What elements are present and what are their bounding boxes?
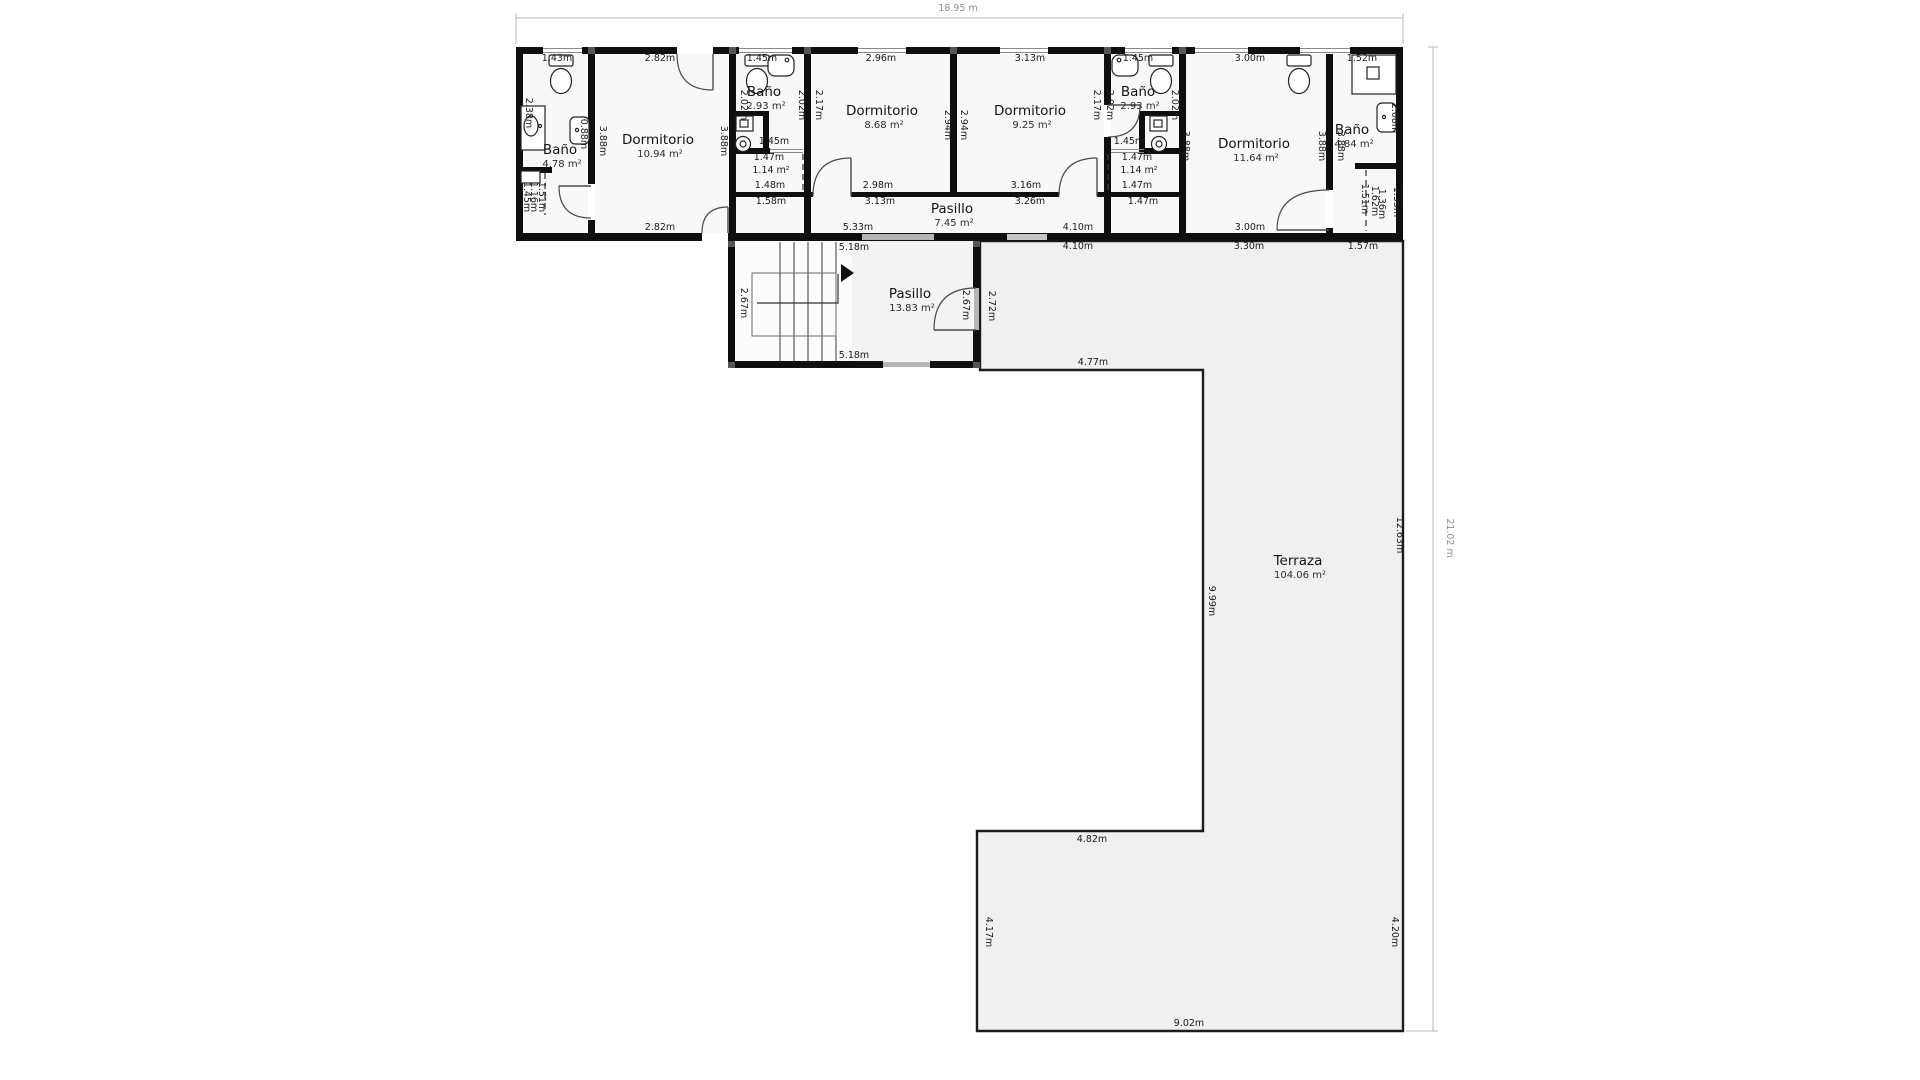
room-name-label: Dormitorio	[1218, 136, 1290, 152]
measurement-label: 4.77m	[1078, 357, 1108, 368]
measurement-label: 1.48m	[755, 180, 785, 191]
measurement-label: 2.72m	[986, 291, 997, 321]
room-name-label: Dormitorio	[846, 103, 918, 119]
measurement-label: 1.52m	[1347, 53, 1377, 64]
room-area-label: 13.83 m²	[889, 303, 935, 314]
room-area-label: 2.93 m²	[746, 101, 785, 112]
room-name-label: Baño	[747, 84, 781, 100]
measurement-label: 9.99m	[1206, 586, 1217, 616]
room-name-label: Pasillo	[931, 201, 973, 217]
measurement-label: 1.45m	[1123, 53, 1153, 64]
floor-fills	[520, 50, 1403, 1031]
measurement-label: 1.35m	[1391, 187, 1402, 217]
measurement-label: 2.94m	[958, 110, 969, 140]
measurement-label: 2.96m	[866, 53, 896, 64]
measurement-label: 3.16m	[1011, 180, 1041, 191]
measurement-label: 2.94m	[942, 110, 953, 140]
room-area-label: 10.94 m²	[637, 149, 683, 160]
window-icon	[1300, 47, 1350, 54]
toilet-icon	[1287, 55, 1311, 94]
measurement-label: 2.02m	[738, 90, 749, 120]
window-icon	[883, 362, 930, 367]
measurement-label: 0.88m	[578, 119, 589, 149]
measurement-label: 12.63m	[1394, 517, 1405, 553]
measurement-label: 2.17m	[1091, 90, 1102, 120]
measurement-label: 1.51m	[1359, 184, 1370, 214]
measurement-label: 1.47m	[754, 152, 784, 163]
measurement-label: 2.02m	[796, 90, 807, 120]
measurement-label: 3.30m	[1234, 241, 1264, 252]
measurement-label: 1.43m	[542, 53, 572, 64]
measurement-label: 2.02m	[1169, 90, 1180, 120]
room-area-label: 8.68 m²	[864, 120, 903, 131]
measurement-label: 9.02m	[1174, 1018, 1204, 1029]
measurement-label: 1.45m	[1114, 136, 1144, 147]
room-name-label: Dormitorio	[994, 103, 1066, 119]
measurement-label: 2.82m	[645, 53, 675, 64]
measurement-label: 1.47m	[1128, 196, 1158, 207]
measurement-label: 3.13m	[1015, 53, 1045, 64]
measurement-label: 2.98m	[863, 180, 893, 191]
measurement-label: 3.88m	[718, 126, 729, 156]
overall-height-label: 21.02 m	[1444, 518, 1455, 557]
window-icon	[862, 234, 934, 240]
measurement-label: 4.20m	[1389, 917, 1400, 947]
measurement-label: 1.14 m²	[752, 165, 789, 176]
measurement-label: 5.33m	[843, 222, 873, 233]
measurement-label: 2.38m	[523, 98, 534, 128]
measurement-label: 1.14 m²	[1120, 165, 1157, 176]
room-area-label: 9.25 m²	[1012, 120, 1051, 131]
measurement-label: 1.51m	[536, 182, 547, 212]
measurement-label: 3.88m	[1316, 131, 1327, 161]
room-name-label: Pasillo	[889, 286, 931, 302]
measurement-label: 4.82m	[1077, 834, 1107, 845]
measurement-label: 3.00m	[1235, 53, 1265, 64]
overall-width-label: 18.95 m	[938, 3, 977, 14]
measurement-label: 3.88m	[1180, 131, 1191, 161]
measurement-label: 2.82m	[645, 222, 675, 233]
room-area-label: 11.64 m²	[1233, 153, 1279, 164]
measurement-label: 2.02m	[1104, 90, 1115, 120]
room-area-label: 4.78 m²	[542, 159, 581, 170]
measurement-label: 4.17m	[983, 917, 994, 947]
room-name-label: Terraza	[1273, 553, 1323, 569]
window-icon	[1007, 234, 1047, 240]
room-area-label: 7.45 m²	[934, 218, 973, 229]
room-name-label: Dormitorio	[622, 132, 694, 148]
terraza-floor	[977, 241, 1403, 1031]
measurement-label: 3.88m	[1335, 131, 1346, 161]
room-name-label: Baño	[543, 142, 577, 158]
room-area-label: 2.93 m²	[1120, 101, 1159, 112]
measurement-label: 2.17m	[813, 90, 824, 120]
measurement-label: 1.58m	[756, 196, 786, 207]
floor-plan: Baño4.78 m²Dormitorio10.94 m²Baño2.93 m²…	[0, 0, 1920, 1080]
measurement-label: 3.26m	[1015, 196, 1045, 207]
measurement-label: 5.18m	[839, 350, 869, 361]
measurement-label: 1.47m	[1122, 180, 1152, 191]
measurement-label: 2.67m	[738, 288, 749, 318]
measurement-label: 5.18m	[839, 242, 869, 253]
measurement-label: 1.57m	[1348, 241, 1378, 252]
measurement-label: 3.13m	[865, 196, 895, 207]
room-name-label: Baño	[1121, 84, 1155, 100]
measurement-label: 2.08m	[1389, 103, 1400, 133]
measurement-label: 4.10m	[1063, 241, 1093, 252]
measurement-label: 4.10m	[1063, 222, 1093, 233]
measurement-label: 1.47m	[1122, 152, 1152, 163]
room-area-label: 104.06 m²	[1274, 570, 1326, 581]
measurement-label: 1.45m	[747, 53, 777, 64]
measurement-label: 3.00m	[1235, 222, 1265, 233]
measurement-label: 1.36m	[1376, 189, 1387, 219]
measurement-label: 3.88m	[597, 126, 608, 156]
measurement-label: 1.45m	[759, 136, 789, 147]
measurement-label: 2.67m	[960, 290, 971, 320]
